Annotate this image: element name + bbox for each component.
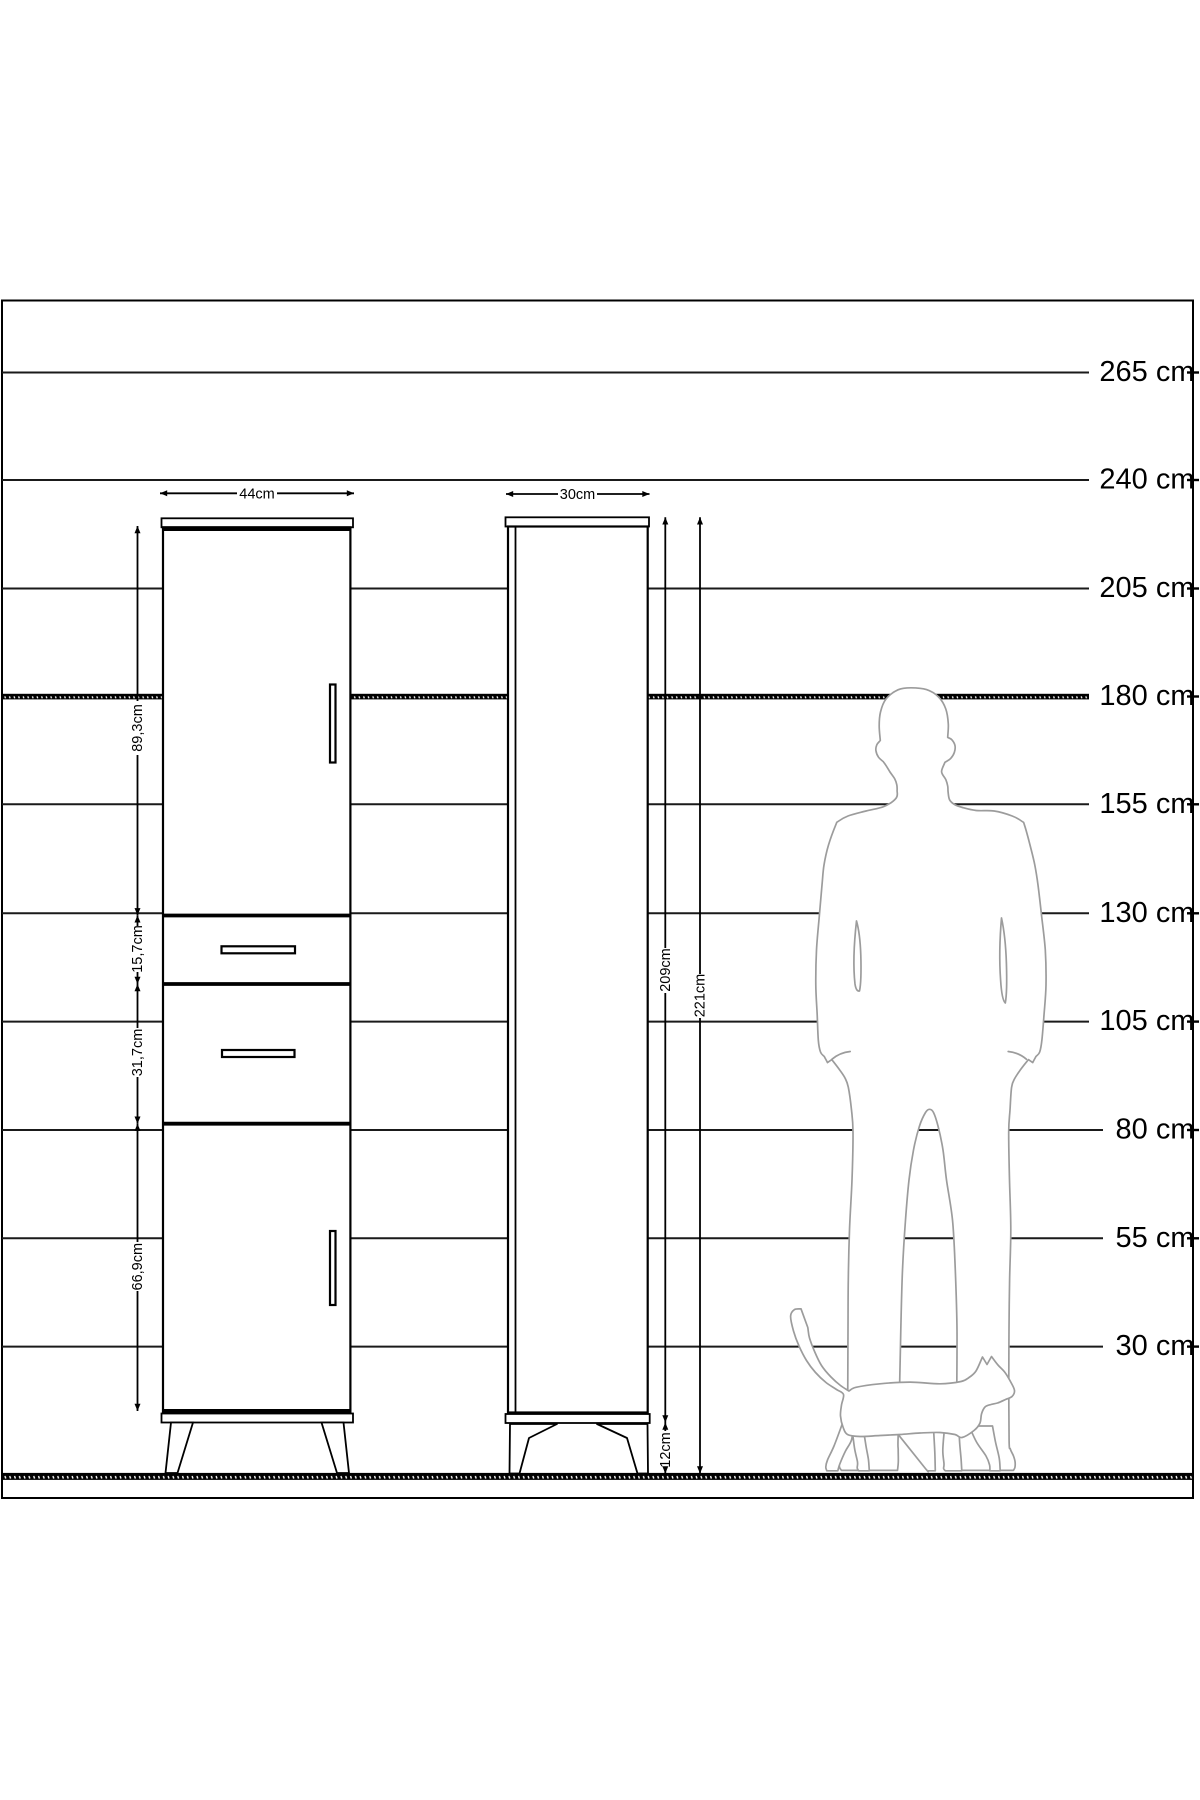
svg-text:89,3cm: 89,3cm [130,704,146,752]
svg-text:240 cm: 240 cm [1099,464,1194,496]
svg-text:55 cm: 55 cm [1116,1222,1195,1254]
svg-text:155 cm: 155 cm [1099,788,1194,820]
svg-text:66,9cm: 66,9cm [130,1243,146,1291]
svg-text:205 cm: 205 cm [1099,572,1194,604]
svg-text:130 cm: 130 cm [1099,897,1194,929]
svg-text:30 cm: 30 cm [1116,1330,1195,1362]
svg-text:180 cm: 180 cm [1099,680,1194,712]
svg-text:105 cm: 105 cm [1099,1005,1194,1037]
svg-text:30cm: 30cm [560,487,595,503]
svg-text:31,7cm: 31,7cm [130,1029,146,1077]
svg-text:265 cm: 265 cm [1099,356,1194,388]
svg-text:44cm: 44cm [239,487,274,503]
svg-text:80 cm: 80 cm [1116,1114,1195,1146]
svg-text:15,7cm: 15,7cm [130,925,146,973]
svg-text:12cm: 12cm [658,1432,674,1467]
svg-text:209cm: 209cm [658,948,674,992]
svg-text:221cm: 221cm [693,974,709,1018]
